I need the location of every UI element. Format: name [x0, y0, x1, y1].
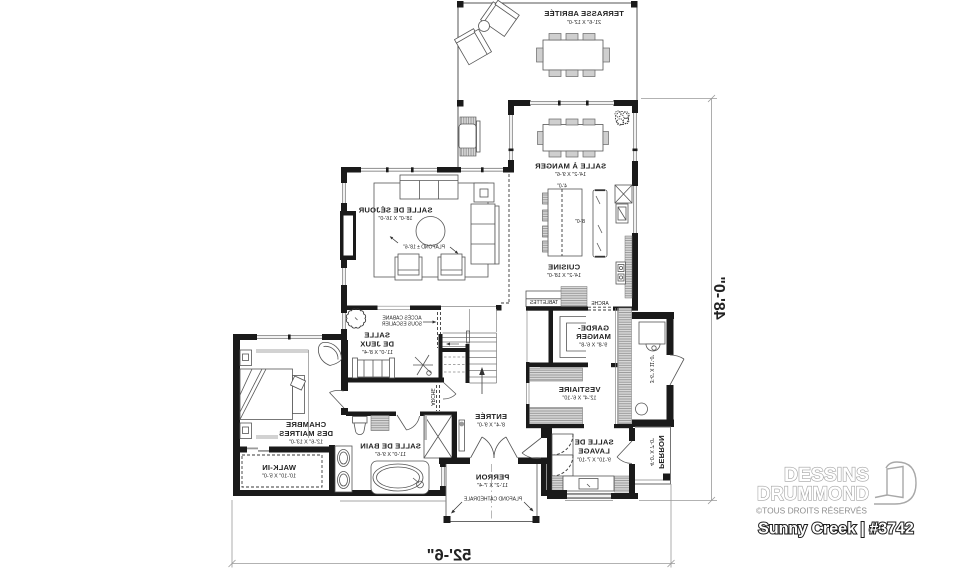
svg-text:DE JEUX: DE JEUX — [360, 340, 394, 349]
svg-text:SOUS ESCALIER: SOUS ESCALIER — [381, 322, 422, 328]
svg-text:LAVAGE: LAVAGE — [578, 447, 610, 456]
svg-text:TABLETTES: TABLETTES — [529, 300, 558, 306]
svg-text:12'-4" X 6'-10": 12'-4" X 6'-10" — [562, 396, 596, 402]
svg-text:DES MAITRES: DES MAITRES — [279, 429, 333, 438]
svg-text:DRUMMOND: DRUMMOND — [757, 484, 869, 505]
svg-text:ARCHE: ARCHE — [591, 301, 609, 307]
svg-text:21'-6" X 12'-0": 21'-6" X 12'-0" — [567, 20, 601, 26]
svg-text:12'-6" X 13'-0": 12'-6" X 13'-0" — [289, 440, 323, 446]
svg-text:ENTRÉE: ENTRÉE — [475, 412, 507, 421]
svg-text:ARCHE: ARCHE — [429, 388, 435, 406]
svg-text:PLAFOND CATHÉDRALE: PLAFOND CATHÉDRALE — [463, 496, 522, 503]
svg-text:VESTIAIRE: VESTIAIRE — [559, 385, 601, 394]
svg-text:Sunny Creek | #3742: Sunny Creek | #3742 — [758, 521, 914, 538]
svg-text:11'-2" X 7'-4": 11'-2" X 7'-4" — [477, 483, 508, 489]
svg-text:©TOUS DROITS RÉSERVÉS: ©TOUS DROITS RÉSERVÉS — [756, 506, 867, 516]
svg-text:11'-0" X 8'-4": 11'-0" X 8'-4" — [362, 350, 393, 356]
svg-text:48'-0": 48'-0" — [710, 276, 727, 319]
svg-text:3'-6" X 11'-0": 3'-6" X 11'-0" — [648, 355, 654, 384]
svg-text:TERRASSE ABRITÉE: TERRASSE ABRITÉE — [544, 9, 624, 18]
svg-text:8'-4" X 9'-0": 8'-4" X 9'-0" — [477, 423, 505, 429]
svg-text:18'-0" X 16'-0": 18'-0" X 16'-0" — [378, 216, 412, 222]
svg-text:WALK-IN: WALK-IN — [262, 463, 296, 472]
svg-text:MANGER: MANGER — [576, 332, 611, 341]
svg-text:9'-8" X 6'-8": 9'-8" X 6'-8" — [579, 343, 607, 349]
svg-text:14'-2" X 18'-0": 14'-2" X 18'-0" — [547, 273, 581, 279]
svg-text:DESSINS: DESSINS — [784, 465, 869, 486]
svg-text:CHAMBRE: CHAMBRE — [286, 420, 326, 429]
svg-text:52'-6": 52'-6" — [427, 547, 472, 565]
svg-text:8'-0": 8'-0" — [575, 219, 585, 225]
svg-text:4'-0": 4'-0" — [557, 184, 567, 190]
svg-text:PLAFOND ± 18'-6": PLAFOND ± 18'-6" — [403, 245, 445, 251]
svg-text:ACCÈS CABANE: ACCÈS CABANE — [382, 315, 422, 322]
svg-text:SALLE À MANGER: SALLE À MANGER — [535, 162, 606, 171]
svg-text:SALLE DE: SALLE DE — [574, 438, 613, 447]
svg-text:SALLE DE BAIN: SALLE DE BAIN — [360, 442, 421, 451]
svg-text:SALLE: SALLE — [364, 331, 390, 340]
svg-text:14'-2" X 9'-6": 14'-2" X 9'-6" — [555, 172, 586, 178]
svg-text:4'-0" X 7'-0": 4'-0" X 7'-0" — [648, 438, 654, 466]
svg-text:PERRON: PERRON — [657, 435, 666, 469]
svg-text:CUISINE: CUISINE — [548, 263, 580, 272]
svg-text:SALLE DE SÉJOUR: SALLE DE SÉJOUR — [358, 206, 432, 215]
svg-text:9'-10" X 7'-10": 9'-10" X 7'-10" — [577, 458, 611, 464]
svg-text:11'-0" X 9'-6": 11'-0" X 9'-6" — [375, 452, 406, 458]
svg-text:10'-10" X 5'-0": 10'-10" X 5'-0" — [262, 474, 296, 480]
svg-text:PERRON: PERRON — [476, 473, 510, 482]
